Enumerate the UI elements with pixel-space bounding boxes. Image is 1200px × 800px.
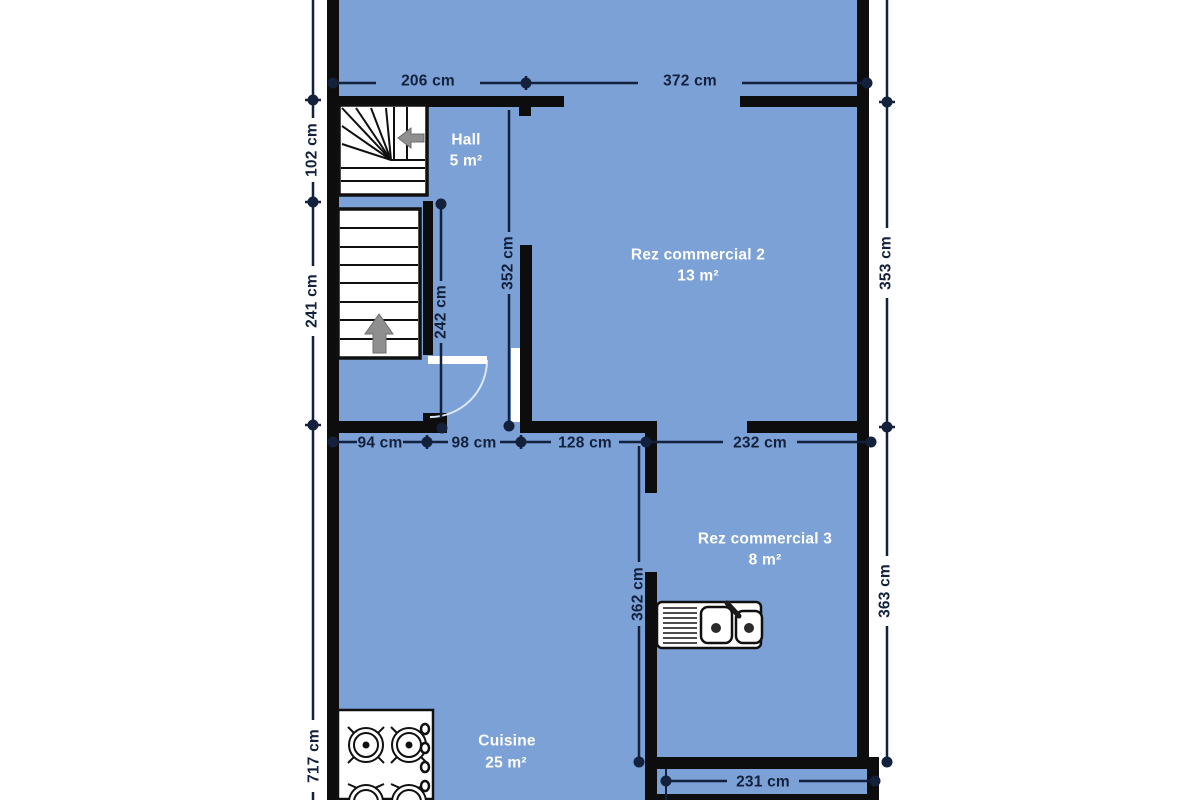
floor-plan-canvas: 206 cm 372 cm 94 cm 98 cm 128 cm 232 cm … xyxy=(0,0,1200,800)
dim-label-232: 232 cm xyxy=(733,435,787,452)
room-label-cuisine: Cuisine xyxy=(478,733,536,750)
wall-top-right-segment xyxy=(740,96,869,107)
dimension-chain-right xyxy=(879,0,895,768)
dim-label-128: 128 cm xyxy=(558,435,612,452)
wall-mid-right xyxy=(747,421,869,433)
wall-rez3-bottom xyxy=(645,757,870,769)
room-area-rez2: 13 m² xyxy=(677,268,719,285)
dim-label-231: 231 cm xyxy=(736,774,790,791)
door-leaf-horizontal xyxy=(428,356,487,364)
room-label-rez3: Rez commercial 3 xyxy=(698,531,832,548)
room-label-rez2: Rez commercial 2 xyxy=(631,247,765,264)
dim-label-717: 717 cm xyxy=(306,729,323,783)
room-label-hall: Hall xyxy=(451,132,480,149)
dim-label-363: 363 cm xyxy=(877,564,894,618)
room-area-hall: 5 m² xyxy=(450,153,483,170)
floor-plan-svg: 206 cm 372 cm 94 cm 98 cm 128 cm 232 cm … xyxy=(0,0,1200,800)
wall-outer-right xyxy=(857,0,869,769)
room-area-cuisine: 25 m² xyxy=(485,755,527,772)
wall-outer-left xyxy=(327,0,339,800)
door-leaf-vertical xyxy=(511,348,520,422)
room-area-rez3: 8 m² xyxy=(749,552,782,569)
stove-icon xyxy=(338,710,433,800)
wall-bottom-strip xyxy=(657,794,879,800)
wall-hall-rez2 xyxy=(520,245,532,433)
wall-stub-hall xyxy=(519,107,531,116)
dim-label-362: 362 cm xyxy=(630,567,647,621)
dim-label-372: 372 cm xyxy=(663,73,717,90)
dim-label-98: 98 cm xyxy=(452,435,497,452)
dim-label-241: 241 cm xyxy=(304,274,321,328)
wall-mid-center xyxy=(520,421,657,433)
kitchen-sink-icon xyxy=(657,602,762,648)
straight-staircase-icon xyxy=(338,209,420,358)
dim-label-94: 94 cm xyxy=(358,435,403,452)
dim-label-206: 206 cm xyxy=(401,73,455,90)
dim-label-353: 353 cm xyxy=(878,236,895,290)
dim-label-242: 242 cm xyxy=(433,285,450,339)
dim-label-102: 102 cm xyxy=(304,123,321,177)
winder-staircase-icon xyxy=(339,105,427,195)
wall-cuisine-rez3-upper xyxy=(645,421,657,493)
wall-mid-left-stub xyxy=(423,413,447,423)
dim-label-352: 352 cm xyxy=(500,236,517,290)
dimension-chain-left xyxy=(305,0,321,800)
wall-stairwell xyxy=(423,201,433,355)
